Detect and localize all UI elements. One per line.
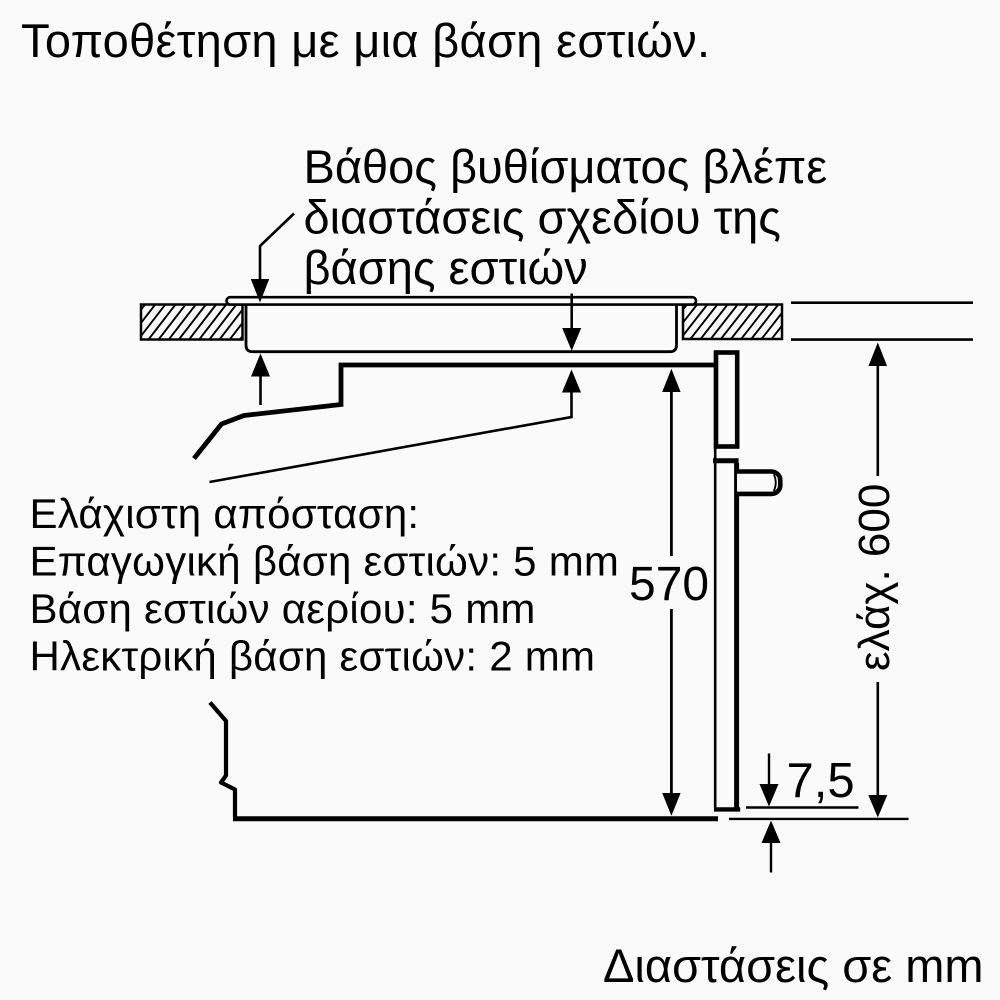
svg-text:Ηλεκτρική βάση εστιών: 2 mm: Ηλεκτρική βάση εστιών: 2 mm — [30, 633, 596, 680]
svg-text:Βάθος βυθίσματος βλέπε: Βάθος βυθίσματος βλέπε — [304, 140, 828, 193]
svg-text:βάσης εστιών: βάσης εστιών — [304, 241, 588, 294]
svg-text:ελάχ. 600: ελάχ. 600 — [850, 484, 899, 671]
svg-text:7,5: 7,5 — [787, 754, 855, 808]
svg-text:Διαστάσεις σε mm: Διαστάσεις σε mm — [603, 939, 984, 992]
svg-text:διαστάσεις σχεδίου της: διαστάσεις σχεδίου της — [304, 191, 781, 244]
svg-text:570: 570 — [629, 558, 709, 611]
svg-text:Τοποθέτηση με μια βάση εστιών.: Τοποθέτηση με μια βάση εστιών. — [21, 14, 710, 67]
svg-text:Βάση εστιών αερίου: 5 mm: Βάση εστιών αερίου: 5 mm — [30, 585, 536, 632]
svg-text:Επαγωγική βάση εστιών: 5 mm: Επαγωγική βάση εστιών: 5 mm — [30, 538, 620, 585]
svg-text:Ελάχιστη απόσταση:: Ελάχιστη απόσταση: — [30, 490, 420, 537]
